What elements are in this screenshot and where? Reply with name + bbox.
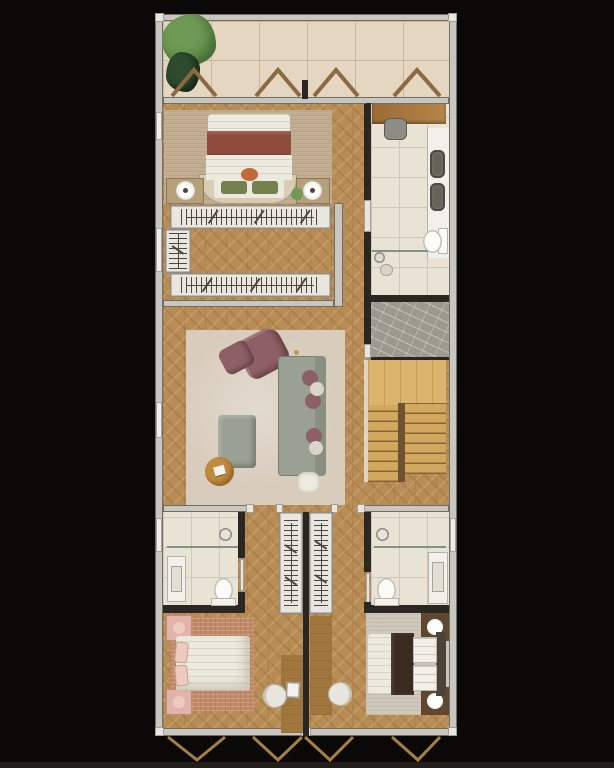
wall-cap — [155, 727, 164, 736]
bedroom-br-pillow-2 — [413, 665, 437, 691]
toilet-tank-br — [374, 598, 399, 606]
window-master-left — [156, 112, 162, 140]
window-living-left — [156, 402, 162, 438]
wardrobe-column-left-hangers — [284, 520, 298, 606]
sofa-pillow-light-2 — [309, 441, 323, 455]
window-closet-left — [156, 228, 162, 272]
vanity-sink-1 — [430, 150, 445, 178]
shower-head-br — [376, 528, 389, 541]
bathroom-top-wall-bottom — [364, 295, 449, 302]
wardrobe-rail-bottom-hangers — [181, 277, 320, 293]
closet-wall-bottom — [163, 300, 334, 307]
shower-glass-bl — [167, 546, 238, 548]
window-bathroom-right — [450, 518, 456, 552]
exterior-wall-right — [449, 14, 457, 736]
bathroom-top-door-gap — [364, 200, 371, 232]
stair-flight-left — [368, 405, 399, 482]
vanity-bl-basin — [171, 566, 182, 592]
bedroom-br-desk — [310, 616, 332, 715]
lamp-left-finial — [183, 188, 188, 193]
bedroom-br-runner — [391, 633, 414, 695]
floor-lamp-dot — [294, 350, 299, 355]
lamp-right-finial — [310, 188, 315, 193]
bathroom-br-door-leaf — [366, 573, 370, 603]
shower-head-top — [374, 252, 385, 263]
window-bathroom-left — [156, 518, 162, 552]
bathroom-br-wall-left-a — [364, 512, 371, 572]
bathroom-stool — [384, 118, 407, 140]
bedroom-br-pillow-1 — [413, 637, 437, 663]
bedroom-br-headboard — [436, 632, 446, 696]
bathroom-top-wall-left-b — [364, 232, 371, 298]
stair-divider — [398, 403, 405, 482]
green-cushion-right — [252, 181, 278, 194]
bathroom-top-wall-left-a — [364, 104, 371, 200]
bedroom-bl-laptop — [286, 682, 301, 699]
door-jamb — [246, 504, 254, 513]
master-bed-runner — [207, 131, 291, 157]
bathroom-br-wall-bottom — [364, 605, 449, 613]
elevator-door-gap — [364, 344, 371, 358]
bathroom-bl-wall-bottom — [163, 605, 245, 613]
elevator-wall-left — [364, 302, 371, 344]
bedroom-bl-nightstand-bottom-dot — [173, 696, 185, 708]
living-bottom-wall-right — [362, 505, 449, 512]
floor-plan — [0, 0, 614, 768]
shower-head-bl — [219, 528, 232, 541]
green-cushion-left — [221, 181, 247, 194]
bedroom-bl-chair — [263, 684, 287, 708]
stair-flight-right — [405, 403, 446, 474]
elevator-floor — [371, 302, 449, 357]
wardrobe-rail-top-hangers — [181, 209, 320, 225]
bedroom-bl-pillow-2 — [174, 664, 189, 686]
wardrobe-column-right-hangers — [314, 520, 328, 606]
vanity-sink-2 — [430, 183, 445, 211]
closet-wall-right — [334, 203, 343, 307]
orange-cushion — [241, 168, 258, 181]
balcony-door-leaf — [302, 80, 308, 99]
bathroom-bench — [372, 104, 446, 124]
sofa-pillow-light-1 — [310, 382, 324, 396]
bedroom-bl-pillow-1 — [174, 641, 189, 663]
bathroom-bl-wall-right-a — [238, 512, 245, 558]
vanity-br-basin — [432, 562, 444, 592]
bathroom-bl-door-leaf — [240, 559, 244, 591]
shower-drain-top — [380, 264, 393, 276]
master-small-plant — [291, 188, 303, 200]
stair-landing — [368, 360, 446, 405]
pouf — [297, 472, 320, 493]
wall-cap — [448, 727, 457, 736]
wardrobe-rail-side-hangers — [169, 233, 187, 269]
toilet-tank-bl — [211, 598, 236, 606]
bedroom-bl-nightstand-top-dot — [173, 622, 185, 634]
living-bottom-wall-left — [163, 505, 252, 512]
background-strip — [0, 762, 614, 768]
bedroom-br-chair — [328, 682, 352, 706]
shower-glass-br — [374, 546, 446, 548]
